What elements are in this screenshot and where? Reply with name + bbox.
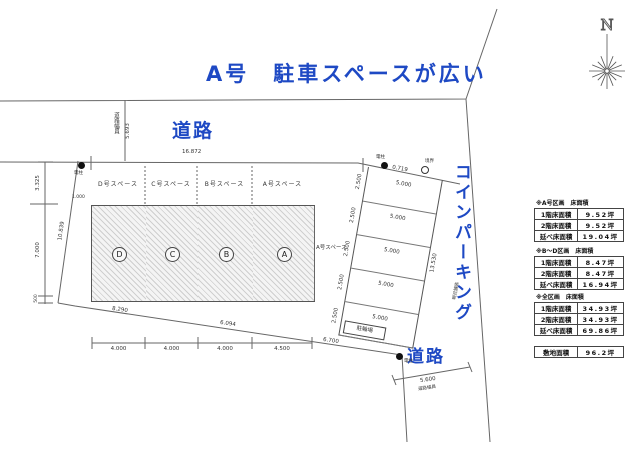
extra-space-label: A号スペース <box>316 243 347 251</box>
table-all-header: ※全区画 床面積 <box>536 292 584 301</box>
lot-b-letter: B <box>219 247 234 262</box>
row-value: 9.52坪 <box>578 209 624 220</box>
strip-cell-dim: 5.000 <box>367 175 441 194</box>
table-bd-floor-area: 1階床面積 8.47坪 2階床面積 8.47坪 延べ床面積 16.94坪 <box>534 256 624 290</box>
space-label-a: A号スペース <box>252 179 313 188</box>
utility-pole-icon <box>78 162 85 169</box>
dim-bottom-4: 4.500 <box>252 346 312 352</box>
utility-pole-label: 電柱 <box>376 154 385 160</box>
table-row: 2階床面積 8.47坪 <box>535 268 624 279</box>
plan-title: A号 駐車スペースが広い <box>206 58 487 88</box>
row-label: 2階床面積 <box>535 268 578 279</box>
table-row: 1階床面積 9.52坪 <box>535 209 624 220</box>
table-row: 延べ床面積 16.94坪 <box>535 279 624 290</box>
table-row: 2階床面積 34.93坪 <box>535 314 624 325</box>
site-area-table: 敷地面積 96.2坪 <box>534 346 624 358</box>
space-label-b: B号スペース <box>197 179 252 188</box>
site-area-value: 96.2坪 <box>578 347 624 358</box>
table-row: 延べ床面積 69.86坪 <box>535 325 624 336</box>
table-a-header: ※A号区画 床面積 <box>536 198 588 207</box>
dim-left-mid: 7.000 <box>35 242 41 258</box>
table-row: 1階床面積 34.93坪 <box>535 303 624 314</box>
dim-bottom-1: 4.000 <box>92 346 145 352</box>
dim-left-lower: 500 <box>34 294 39 303</box>
building-block: D C B A <box>91 205 315 302</box>
row-value: 8.47坪 <box>578 268 624 279</box>
utility-pole-icon <box>396 353 403 360</box>
row-label: 2階床面積 <box>535 314 578 325</box>
row-label: 1階床面積 <box>535 209 578 220</box>
row-label: 延べ床面積 <box>535 279 578 290</box>
utility-pole-icon <box>381 162 388 169</box>
row-label: 1階床面積 <box>535 257 578 268</box>
lot-a-letter: A <box>277 247 292 262</box>
row-value: 34.93坪 <box>578 303 624 314</box>
dim-top-width: 16.872 <box>182 149 201 155</box>
boundary-marker-label: 境界 <box>425 158 434 164</box>
dim-offset: 1.000 <box>72 195 85 200</box>
table-all-floor-area: 1階床面積 34.93坪 2階床面積 34.93坪 延べ床面積 69.86坪 <box>534 302 624 336</box>
north-letter: N <box>600 16 613 34</box>
table-bd-header: ※B～D区画 床面積 <box>536 246 593 255</box>
space-label-c: C号スペース <box>145 179 197 188</box>
table-row: 2階床面積 9.52坪 <box>535 220 624 231</box>
site-plan-page: { "title": "A号 駐車スペースが広い", "colors": { "… <box>0 0 640 454</box>
row-label: 延べ床面積 <box>535 231 578 242</box>
row-label: 延べ床面積 <box>535 325 578 336</box>
row-value: 9.52坪 <box>578 220 624 231</box>
row-value: 8.47坪 <box>578 257 624 268</box>
row-label: 2階床面積 <box>535 220 578 231</box>
road-label-top: 道路 <box>172 116 214 143</box>
utility-pole-label: 電柱 <box>74 170 83 176</box>
space-label-d: D号スペース <box>91 179 145 188</box>
table-a-floor-area: 1階床面積 9.52坪 2階床面積 9.52坪 延べ床面積 19.04坪 <box>534 208 624 242</box>
lot-d-letter: D <box>112 247 127 262</box>
row-value: 19.04坪 <box>578 231 624 242</box>
dim-bottom-2: 4.000 <box>145 346 198 352</box>
table-row: 延べ床面積 19.04坪 <box>535 231 624 242</box>
row-value: 69.86坪 <box>578 325 624 336</box>
strip-cell-dim: 5.000 <box>349 276 423 295</box>
strip-cell-dim: 5.000 <box>361 209 435 228</box>
dim-bottom-3: 4.000 <box>198 346 252 352</box>
table-row: 敷地面積 96.2坪 <box>535 347 624 358</box>
dim-left-upper: 3.325 <box>35 175 41 191</box>
utility-pole-label: 電柱 <box>404 358 413 364</box>
strip-cell-dim: 5.000 <box>355 242 429 261</box>
table-row: 1階床面積 8.47坪 <box>535 257 624 268</box>
north-compass-icon: N <box>584 16 630 90</box>
road-width-top-value: 5.693 <box>125 123 131 139</box>
site-area-label: 敷地面積 <box>535 347 578 358</box>
lot-c-letter: C <box>165 247 180 262</box>
row-value: 34.93坪 <box>578 314 624 325</box>
road-width-top-label: 道路幅員 <box>112 112 120 134</box>
boundary-marker-icon <box>421 166 429 174</box>
row-label: 1階床面積 <box>535 303 578 314</box>
row-value: 16.94坪 <box>578 279 624 290</box>
